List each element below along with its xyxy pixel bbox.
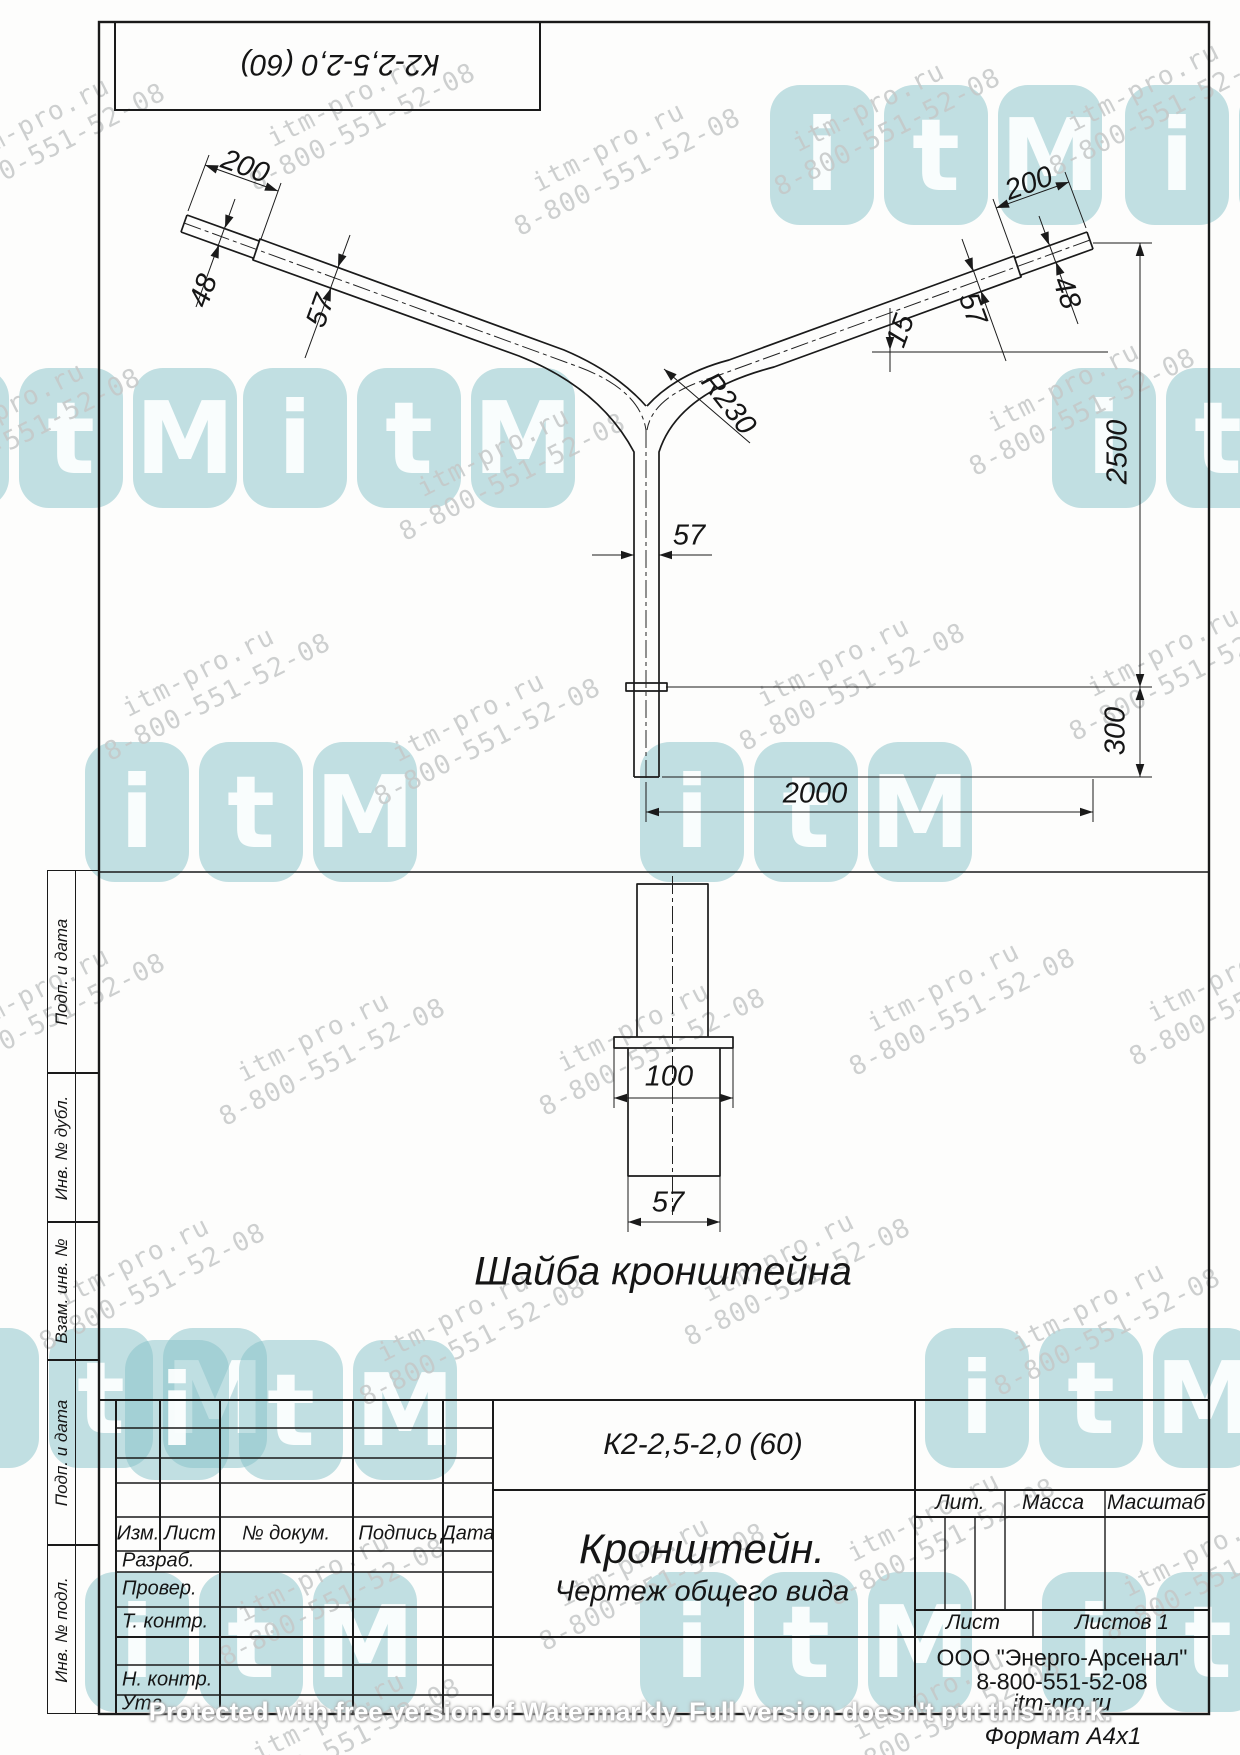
sidebar-label: Подп. и дата (52, 1399, 72, 1505)
sidebar-cell-podp-data-2: Подп. и дата (47, 1360, 99, 1545)
col-podpis: Подпись (358, 1523, 437, 1546)
row-nkontr: Н. контр. (122, 1669, 212, 1692)
sidebar-divider (75, 1074, 76, 1221)
dim-2000: 2000 (783, 778, 848, 811)
sidebar-cell-inv-dubl: Инв. № дубл. (47, 1073, 99, 1222)
sidebar-divider (75, 871, 76, 1072)
drawing-sheet: itM itM itM itM itM itM itM itM itM itM … (0, 0, 1240, 1755)
col-list: Лист (164, 1523, 216, 1546)
company-name: ООО "Энерго-Арсенал" (937, 1645, 1188, 1672)
sidebar-divider (75, 1223, 76, 1359)
col-data: Дата (442, 1523, 495, 1546)
sidebar-label: Инв. № дубл. (52, 1095, 72, 1200)
cell-lit: Лит. (935, 1491, 984, 1515)
titleblock-doc-number: К2-2,5-2,0 (60) (603, 1428, 802, 1462)
row-prover: Провер. (122, 1578, 197, 1601)
washer-dim-57: 57 (652, 1187, 684, 1220)
row-tkontr: Т. контр. (122, 1611, 208, 1634)
sidebar-cell-vzam-inv: Взам. инв. № (47, 1222, 99, 1360)
sidebar-label: Подп. и дата (52, 918, 72, 1024)
titleblock-title: Кронштейн. (579, 1525, 825, 1573)
col-doc: № докум. (242, 1523, 330, 1546)
col-izm: Изм. (117, 1523, 160, 1546)
sidebar-cell-inv-podl: Инв. № подл. (47, 1545, 99, 1714)
dim-mast-57: 57 (673, 520, 705, 553)
cell-scale: Масштаб (1107, 1491, 1205, 1515)
titleblock-subtitle: Чертеж общего вида (555, 1576, 850, 1609)
washer-caption: Шайба кронштейна (474, 1250, 852, 1295)
washer-dim-100: 100 (645, 1061, 693, 1094)
sidebar-label: Инв. № подл. (52, 1577, 72, 1683)
dim-2500: 2500 (1102, 420, 1135, 485)
row-razrab: Разраб. (122, 1550, 194, 1573)
sidebar-label: Взам. инв. № (52, 1238, 72, 1343)
sidebar-cell-podp-data-1: Подп. и дата (47, 870, 99, 1073)
dim-300: 300 (1100, 707, 1133, 755)
cell-sheet: Лист (946, 1611, 1000, 1635)
cell-mass: Масса (1022, 1491, 1084, 1515)
watermarkly-notice: Protected with free version of Watermark… (149, 1697, 1112, 1728)
cell-sheets: Листов 1 (1075, 1611, 1169, 1635)
sidebar-divider (75, 1546, 76, 1713)
sidebar-divider (75, 1361, 76, 1544)
stamp-code: К2-2,5-2,0 (60) (240, 47, 439, 81)
